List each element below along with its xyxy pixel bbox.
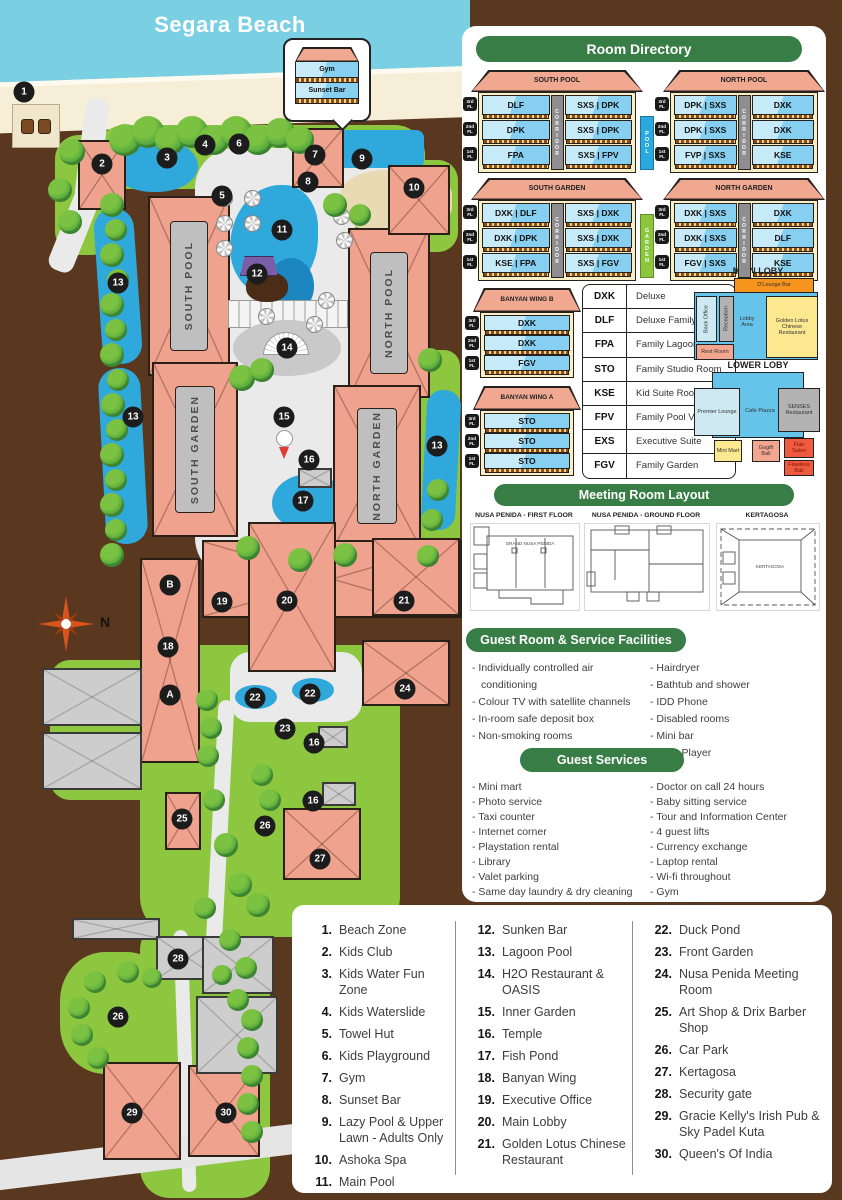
map-marker-B: B xyxy=(160,575,181,596)
floor-badge-text: FL xyxy=(469,421,475,426)
map-marker-27: 27 xyxy=(310,849,331,870)
wing-roof: BANYAN WING B xyxy=(473,288,581,312)
tree-icon xyxy=(105,469,127,491)
floor-badge-text: FL xyxy=(469,363,475,368)
floor-badge-text: FL xyxy=(659,212,665,217)
legend-item-label: Sunken Bar xyxy=(502,922,627,938)
balcony-dashes xyxy=(753,115,814,119)
floor-badge: 1stFL xyxy=(655,147,669,161)
legend-item: 12.Sunken Bar xyxy=(469,922,627,938)
list-item: Wi-fi throughout xyxy=(650,870,822,885)
corridor-label: CORRIDOR xyxy=(551,203,564,278)
plan-title: NUSA PENIDA - FIRST FLOOR xyxy=(470,512,578,519)
legend-item-number: 13. xyxy=(469,944,495,960)
map-marker-16: 16 xyxy=(299,450,320,471)
legend-item-label: Beach Zone xyxy=(339,922,452,938)
balcony-dashes xyxy=(483,140,549,144)
tree-icon xyxy=(237,1093,259,1115)
legend-item-label: Kids Waterslide xyxy=(339,1004,452,1020)
rd-building-roof: SOUTH GARDEN xyxy=(471,178,643,200)
floor-badge-text: FL xyxy=(469,343,475,348)
map-marker-16: 16 xyxy=(304,733,325,754)
map-marker-13: 13 xyxy=(427,436,448,457)
tree-icon xyxy=(427,479,449,501)
map-marker-21: 21 xyxy=(394,591,415,612)
legend-item-number: 23. xyxy=(646,944,672,960)
list-item: Individually controlled air conditioning xyxy=(472,660,644,694)
guest-services-title: Guest Services xyxy=(520,748,684,772)
legend-item-label: Lazy Pool & Upper Lawn - Adults Only xyxy=(339,1114,452,1146)
balcony-dashes xyxy=(483,223,549,227)
tree-icon xyxy=(251,764,273,786)
map-marker-8: 8 xyxy=(298,172,319,193)
list-item: Library xyxy=(472,855,640,870)
map-marker-28: 28 xyxy=(168,949,189,970)
room-cell: DXK | DLF xyxy=(482,203,550,223)
legend-item-number: 10. xyxy=(306,1152,332,1168)
rd-building-south-pool: SOUTH POOLDLFSXS | DPKDPKSXS | DPKFPASXS… xyxy=(478,70,636,173)
staff-building xyxy=(42,668,142,726)
legend-item-number: 2. xyxy=(306,944,332,960)
legend-item-label: Nusa Penida Meeting Room xyxy=(679,966,822,998)
room-cell: DXK xyxy=(484,335,570,351)
room-code: EXS xyxy=(583,430,627,453)
floor-badge-text: FL xyxy=(469,461,475,466)
legend-item: 27.Kertagosa xyxy=(646,1064,822,1080)
info-panel: Room Directory SOUTH POOLDLFSXS | DPKDPK… xyxy=(462,26,826,902)
floorplan-drawing: GRAND NUSA PENIDA xyxy=(471,524,579,610)
wing-body: STOSTOSTO xyxy=(480,410,574,476)
room-cell: SXS | DPK xyxy=(565,120,633,140)
tree-icon xyxy=(100,493,124,517)
legend-item: 23.Front Garden xyxy=(646,944,822,960)
tree-icon xyxy=(421,509,443,531)
tree-icon xyxy=(288,548,312,572)
map-marker-30: 30 xyxy=(216,1103,237,1124)
floor-badge: 3rdFL xyxy=(655,97,669,111)
meeting-room-layout-title: Meeting Room Layout xyxy=(494,484,794,506)
golden-lotus-building xyxy=(372,538,460,616)
balcony-dashes xyxy=(566,248,632,252)
balcony-dashes xyxy=(485,371,569,375)
list-item: Valet parking xyxy=(472,870,640,885)
balcony-dashes xyxy=(566,223,632,227)
wing-body: DXKDXKFGV xyxy=(480,312,574,378)
lobby-room-flawless: Flawless Bali xyxy=(784,460,814,476)
legend-item: 20.Main Lobby xyxy=(469,1114,627,1130)
tree-icon xyxy=(105,319,127,341)
beach-hut xyxy=(12,104,60,148)
room-cell: DPK xyxy=(482,120,550,140)
services-list-right: Doctor on call 24 hoursBaby sitting serv… xyxy=(650,780,822,915)
legend-item-number: 7. xyxy=(306,1070,332,1086)
map-marker-12: 12 xyxy=(247,264,268,285)
map-marker-A: A xyxy=(160,685,181,706)
lower-lobby-diagram: Premier LoungeCafe PiazzaSENSES Restaura… xyxy=(694,372,820,476)
facilities-list-right: HairdryerBathtub and showerIDD PhoneDisa… xyxy=(650,660,820,762)
map-marker-26: 26 xyxy=(255,816,276,837)
legend-item-label: Towel Hut xyxy=(339,1026,452,1042)
legend-item-number: 17. xyxy=(469,1048,495,1064)
balcony-dashes xyxy=(566,140,632,144)
lobby-room-premier: Premier Lounge xyxy=(694,388,740,436)
map-marker-9: 9 xyxy=(352,149,373,170)
tree-icon xyxy=(194,897,216,919)
legend-item: 1.Beach Zone xyxy=(306,922,452,938)
legend-item: 3.Kids Water Fun Zone xyxy=(306,966,452,998)
room-code: FGV xyxy=(583,454,627,477)
legend-item: 7.Gym xyxy=(306,1070,452,1086)
balcony-dashes xyxy=(675,165,736,169)
tree-icon xyxy=(105,219,127,241)
floor-badge: 3rdFL xyxy=(655,205,669,219)
facilities-title: Guest Room & Service Facilities xyxy=(466,628,686,652)
floor-badge-text: FL xyxy=(467,212,473,217)
tree-icon xyxy=(100,543,124,567)
room-cell: DXK xyxy=(752,120,815,140)
map-building-label-box: SOUTH GARDEN xyxy=(175,386,214,513)
floor-badge: 2ndFL xyxy=(465,434,479,448)
balcony-dashes xyxy=(483,115,549,119)
legend-item-label: Main Pool xyxy=(339,1174,452,1190)
tree-icon xyxy=(200,717,222,739)
legend-item-number: 12. xyxy=(469,922,495,938)
plan-title: NUSA PENIDA - GROUND FLOOR xyxy=(584,512,708,519)
callout-sunsetbar-label: Sunset Bar xyxy=(295,83,359,99)
legend-item: 18.Banyan Wing xyxy=(469,1070,627,1086)
ashoka-spa-building xyxy=(388,165,450,235)
legend-item-number: 29. xyxy=(646,1108,672,1140)
room-cell: DPK | SXS xyxy=(674,120,737,140)
room-cell: DXK xyxy=(752,203,815,223)
facilities-list-left: Individually controlled air conditioning… xyxy=(472,660,644,745)
legend-item-label: Executive Office xyxy=(502,1092,627,1108)
legend-divider xyxy=(632,921,633,1175)
map-marker-15: 15 xyxy=(274,407,295,428)
map-building-label: NORTH GARDEN xyxy=(371,411,383,521)
legend-item-number: 5. xyxy=(306,1026,332,1042)
legend-item-label: Banyan Wing xyxy=(502,1070,627,1086)
map-marker-4: 4 xyxy=(195,135,216,156)
lobby-room-dlounge: D'Lounge Bar xyxy=(734,278,814,293)
balcony-dashes xyxy=(483,273,549,277)
legend-item-number: 14. xyxy=(469,966,495,998)
room-cell: DLF xyxy=(752,228,815,248)
floor-badge-text: FL xyxy=(469,323,475,328)
legend-item-label: Art Shop & Drix Barber Shop xyxy=(679,1004,822,1036)
map-building-north-garden: NORTH GARDEN xyxy=(333,385,421,547)
legend-item-number: 27. xyxy=(646,1064,672,1080)
tree-icon xyxy=(241,1009,263,1031)
tree-icon xyxy=(235,957,257,979)
lobby-room-goldenlotus: Golden Lotus Chinese Restaurant xyxy=(766,296,818,358)
balcony-dashes xyxy=(566,165,632,169)
tree-icon xyxy=(105,519,127,541)
rd-building-body: DPK | SXSDXKDPK | SXSDXKFVP | SXSKSECORR… xyxy=(670,92,818,173)
room-cell: SXS | FGV xyxy=(565,253,633,273)
lobby-room-lobbyarea: Lobby Area xyxy=(734,308,760,336)
floorplan-nusa-penida-first: GRAND NUSA PENIDA xyxy=(470,523,580,611)
legend-item-label: Queen's Of India xyxy=(679,1146,822,1162)
legend-item: 14.H2O Restaurant & OASIS xyxy=(469,966,627,998)
floor-badge-text: FL xyxy=(659,237,665,242)
map-building-north-pool: NORTH POOL xyxy=(348,228,430,398)
legend-item-number: 18. xyxy=(469,1070,495,1086)
map-marker-29: 29 xyxy=(122,1103,143,1124)
tree-icon xyxy=(323,193,347,217)
legend-item-number: 28. xyxy=(646,1086,672,1102)
legend-item: 10.Ashoka Spa xyxy=(306,1152,452,1168)
legend-item: 6.Kids Playground xyxy=(306,1048,452,1064)
map-marker-24: 24 xyxy=(395,679,416,700)
floor-badge: 3rdFL xyxy=(463,97,477,111)
map-marker-11: 11 xyxy=(272,220,293,241)
tree-icon xyxy=(228,873,252,897)
callout-gym-label: Gym xyxy=(295,62,359,78)
compass-center xyxy=(61,619,71,629)
rd-building-roof: NORTH GARDEN xyxy=(663,178,825,200)
legend-item: 4.Kids Waterslide xyxy=(306,1004,452,1020)
room-cell: KSE | FPA xyxy=(482,253,550,273)
legend-item-label: Duck Pond xyxy=(679,922,822,938)
floor-badge: 1stFL xyxy=(465,454,479,468)
balcony-dashes xyxy=(483,165,549,169)
room-cell: SXS | DXK xyxy=(565,203,633,223)
map-building-label: SOUTH POOL xyxy=(183,241,195,330)
list-item: Currency exchange xyxy=(650,840,822,855)
list-item: Non-smoking rooms xyxy=(472,728,644,745)
rd-building-south-garden: SOUTH GARDENDXK | DLFSXS | DXKDXK | DPKS… xyxy=(478,178,636,281)
list-item: 4 guest lifts xyxy=(650,825,822,840)
floor-badge: 2ndFL xyxy=(465,336,479,350)
wing-name: BANYAN WING B xyxy=(475,290,580,311)
lazy-pool xyxy=(332,130,424,168)
legend-item-number: 24. xyxy=(646,966,672,998)
legend-item: 9.Lazy Pool & Upper Lawn - Adults Only xyxy=(306,1114,452,1146)
corridor-label: CORRIDOR xyxy=(738,95,751,170)
floor-badge-text: FL xyxy=(467,154,473,159)
legend-item: 5.Towel Hut xyxy=(306,1026,452,1042)
rd-building-roof: NORTH POOL xyxy=(663,70,825,92)
legend-item-number: 9. xyxy=(306,1114,332,1146)
legend-item: 13.Lagoon Pool xyxy=(469,944,627,960)
wing-roof: BANYAN WING A xyxy=(473,386,581,410)
map-marker-22: 22 xyxy=(245,688,266,709)
room-cell: DXK xyxy=(484,315,570,331)
balcony-dashes xyxy=(753,165,814,169)
legend-item: 2.Kids Club xyxy=(306,944,452,960)
legend-item: 15.Inner Garden xyxy=(469,1004,627,1020)
legend-item-label: Kids Club xyxy=(339,944,452,960)
legend-item: 16.Temple xyxy=(469,1026,627,1042)
map-marker-6: 6 xyxy=(229,134,250,155)
map-marker-20: 20 xyxy=(277,591,298,612)
plan-inner-label: KERTAGOSA xyxy=(756,564,785,569)
tree-icon xyxy=(417,545,439,567)
wing-name: BANYAN WING A xyxy=(475,388,580,409)
parasol-icon xyxy=(216,215,233,232)
services-list-left: Mini martPhoto serviceTaxi counterIntern… xyxy=(472,780,640,900)
outbuilding xyxy=(72,918,160,940)
inner-garden-sign xyxy=(276,430,293,447)
tree-icon xyxy=(68,997,90,1019)
room-cell: SXS | DPK xyxy=(565,95,633,115)
side-label-garden: GARDEN xyxy=(640,214,654,278)
legend-item-label: Temple xyxy=(502,1026,627,1042)
floor-badge-text: FL xyxy=(659,154,665,159)
legend-item: 21.Golden Lotus Chinese Restaurant xyxy=(469,1136,627,1168)
balcony-dashes xyxy=(675,115,736,119)
map-building-label-box: NORTH POOL xyxy=(370,252,407,375)
legend-item: 24.Nusa Penida Meeting Room xyxy=(646,966,822,998)
tree-icon xyxy=(48,178,72,202)
legend-item-number: 16. xyxy=(469,1026,495,1042)
floor-badge: 2ndFL xyxy=(655,230,669,244)
legend-item: 17.Fish Pond xyxy=(469,1048,627,1064)
room-code: FPV xyxy=(583,406,627,429)
beach-title: Segara Beach xyxy=(40,12,420,38)
map-marker-25: 25 xyxy=(172,809,193,830)
map-marker-17: 17 xyxy=(293,491,314,512)
tree-icon xyxy=(203,789,225,811)
lobby-room-flair: Flair Salon xyxy=(784,438,814,458)
tree-icon xyxy=(246,893,270,917)
map-marker-16: 16 xyxy=(303,791,324,812)
legend-item-label: Sunset Bar xyxy=(339,1092,452,1108)
legend-item-label: Front Garden xyxy=(679,944,822,960)
list-item: Doctor on call 24 hours xyxy=(650,780,822,795)
callout-roof xyxy=(295,47,359,62)
legend-item-label: Lagoon Pool xyxy=(502,944,627,960)
list-item: Bathtub and shower xyxy=(650,677,820,694)
list-item: Colour TV with satellite channels xyxy=(472,694,644,711)
tree-icon xyxy=(142,968,162,988)
balcony-dashes xyxy=(675,223,736,227)
tree-icon xyxy=(117,961,139,983)
room-cell: STO xyxy=(484,453,570,469)
room-cell: SXS | DXK xyxy=(565,228,633,248)
tree-icon xyxy=(227,989,249,1011)
tree-icon xyxy=(100,193,124,217)
room-cell: STO xyxy=(484,433,570,449)
gym-sunset-bar-callout: Gym Sunset Bar xyxy=(283,38,371,122)
legend-item-number: 30. xyxy=(646,1146,672,1162)
map-marker-22: 22 xyxy=(300,684,321,705)
room-cell: DXK | DPK xyxy=(482,228,550,248)
balcony-dashes xyxy=(753,248,814,252)
legend-item-number: 8. xyxy=(306,1092,332,1108)
legend-item-number: 4. xyxy=(306,1004,332,1020)
callout-dashes xyxy=(295,99,359,104)
parasol-icon xyxy=(318,292,335,309)
list-item: Laptop rental xyxy=(650,855,822,870)
floor-badge-text: FL xyxy=(659,104,665,109)
room-cell: KSE xyxy=(752,145,815,165)
floor-badge: 2ndFL xyxy=(463,230,477,244)
wing-a: BANYAN WING ASTOSTOSTO xyxy=(480,386,574,476)
balcony-dashes xyxy=(485,469,569,473)
map-marker-13: 13 xyxy=(108,273,129,294)
legend-item-label: Kids Water Fun Zone xyxy=(339,966,452,998)
corridor-label: CORRIDOR xyxy=(738,203,751,278)
list-item: Gym xyxy=(650,885,822,900)
temple-structure xyxy=(298,468,332,488)
balcony-dashes xyxy=(753,140,814,144)
list-item: IDD Phone xyxy=(650,694,820,711)
main-lobby-diagram: D'Lounge BarBack OfficeReceptionLobby Ar… xyxy=(694,278,820,360)
legend-column-1: 1.Beach Zone2.Kids Club3.Kids Water Fun … xyxy=(306,922,452,1196)
floor-badge-text: FL xyxy=(467,237,473,242)
list-item: Same day laundry & dry cleaning xyxy=(472,885,640,900)
parasol-icon xyxy=(258,308,275,325)
tree-icon xyxy=(107,369,129,391)
legend-item-number: 20. xyxy=(469,1114,495,1130)
list-item: Internet corner xyxy=(472,825,640,840)
map-marker-23: 23 xyxy=(275,719,296,740)
tree-icon xyxy=(418,348,442,372)
room-cell: FVP | SXS xyxy=(674,145,737,165)
tree-icon xyxy=(250,358,274,382)
room-cell: DLF xyxy=(482,95,550,115)
map-legend: 1.Beach Zone2.Kids Club3.Kids Water Fun … xyxy=(292,905,832,1193)
legend-item-number: 3. xyxy=(306,966,332,998)
tree-icon xyxy=(196,689,218,711)
floor-badge: 1stFL xyxy=(465,356,479,370)
rd-building-roof: SOUTH POOL xyxy=(471,70,643,92)
legend-item: 22.Duck Pond xyxy=(646,922,822,938)
list-item: Taxi counter xyxy=(472,810,640,825)
legend-item: 25.Art Shop & Drix Barber Shop xyxy=(646,1004,822,1036)
floorplan-drawing xyxy=(585,524,709,610)
parasol-icon xyxy=(336,232,353,249)
legend-item: 29.Gracie Kelly's Irish Pub & Sky Padel … xyxy=(646,1108,822,1140)
tree-icon xyxy=(214,833,238,857)
tree-icon xyxy=(197,745,219,767)
tree-icon xyxy=(100,443,124,467)
temple-structure xyxy=(322,782,356,806)
legend-item: 26.Car Park xyxy=(646,1042,822,1058)
map-marker-7: 7 xyxy=(305,145,326,166)
tree-icon xyxy=(241,1065,263,1087)
floor-badge-text: FL xyxy=(467,262,473,267)
legend-item-number: 11. xyxy=(306,1174,332,1190)
legend-item-number: 25. xyxy=(646,1004,672,1036)
tree-icon xyxy=(101,393,125,417)
resort-map-page: Segara Beach SOUTH POOLNORT xyxy=(0,0,842,1200)
room-cell: STO xyxy=(484,413,570,429)
room-code: STO xyxy=(583,358,627,381)
map-marker-2: 2 xyxy=(92,154,113,175)
balcony-dashes xyxy=(675,248,736,252)
floor-badge-text: FL xyxy=(659,262,665,267)
tree-icon xyxy=(100,243,124,267)
floor-badge-text: FL xyxy=(659,129,665,134)
plan-inner-label: GRAND NUSA PENIDA xyxy=(506,541,556,546)
legend-item-label: Fish Pond xyxy=(502,1048,627,1064)
lobby-room-backoffice: Back Office xyxy=(696,296,717,342)
lobby-room-minimart: Mini Mart xyxy=(714,440,742,462)
main-lobby-title: MAIN LOBY xyxy=(694,266,822,276)
legend-item-number: 6. xyxy=(306,1048,332,1064)
legend-item-label: Main Lobby xyxy=(502,1114,627,1130)
lobby-room-reception: Reception xyxy=(719,296,734,342)
side-label-pool: POOL xyxy=(640,116,654,170)
tree-icon xyxy=(237,1037,259,1059)
floor-badge: 3rdFL xyxy=(465,414,479,428)
tree-icon xyxy=(236,536,260,560)
map-marker-3: 3 xyxy=(157,148,178,169)
room-cell: FGV xyxy=(484,355,570,371)
